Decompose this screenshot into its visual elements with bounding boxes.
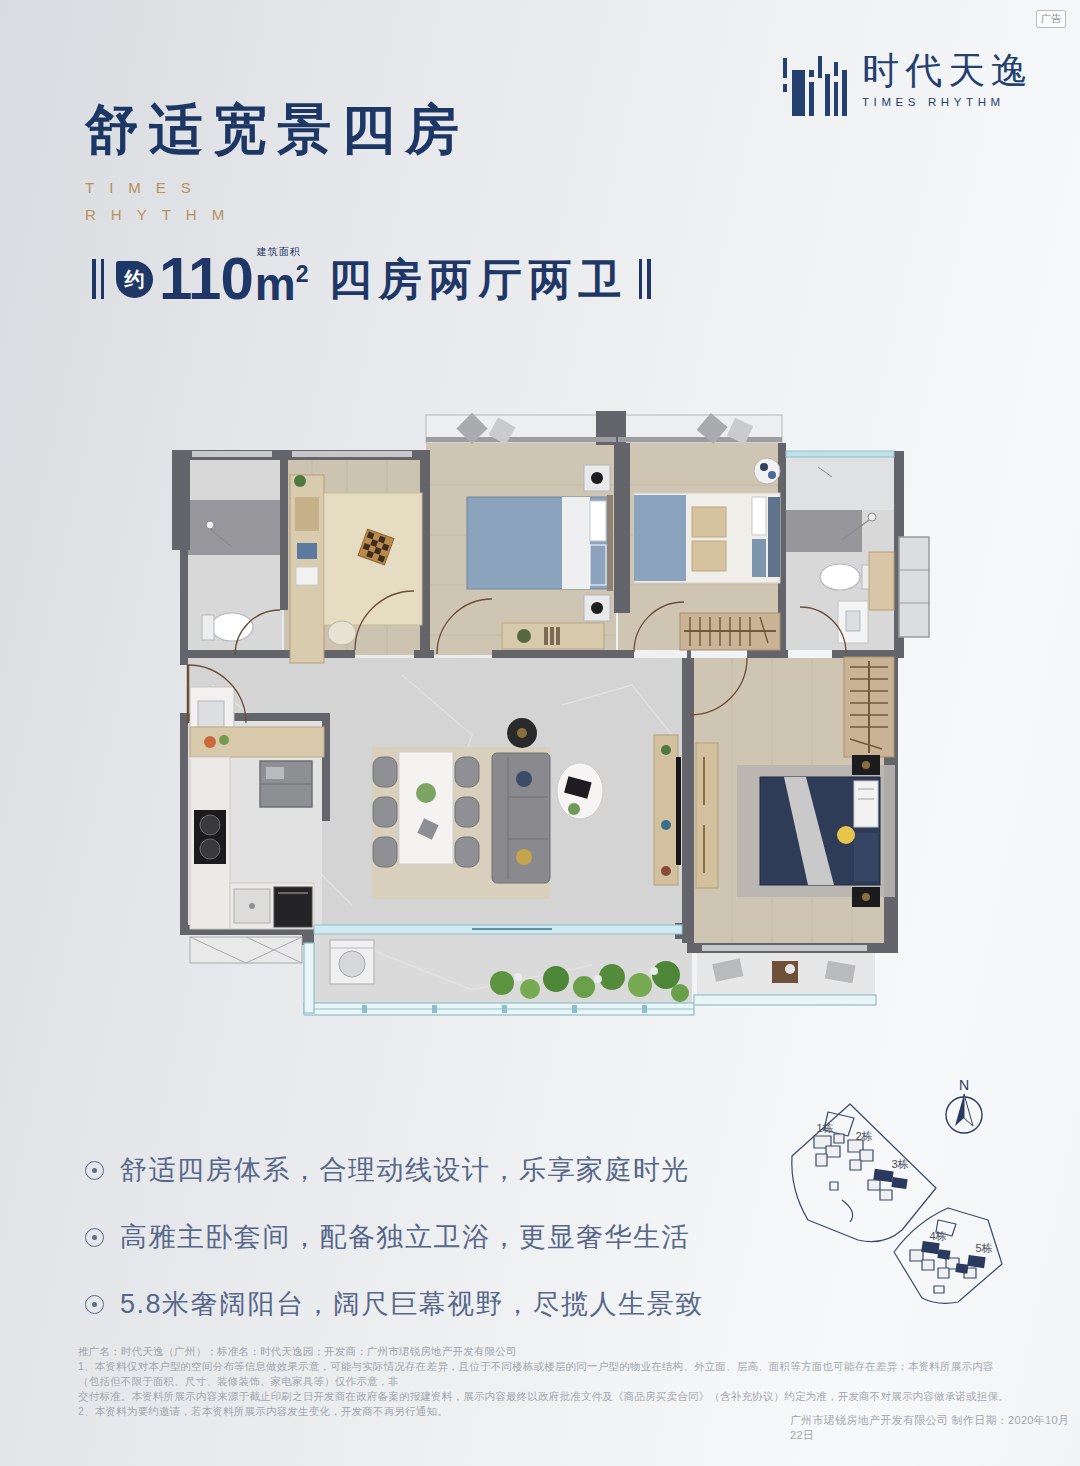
feature-item: 高雅主卧套间，配备独立卫浴，更显奢华生活 bbox=[85, 1219, 704, 1255]
ac-ledge bbox=[899, 537, 929, 637]
feature-item: 舒适四房体系，合理动线设计，乐享家庭时光 bbox=[85, 1152, 704, 1188]
site-plan: N bbox=[788, 1072, 1080, 1328]
poster-page: 广告 时代天逸 TIMES RHYTHM 舒适宽景四房 TIME bbox=[0, 0, 1080, 1466]
double-bar-left-icon bbox=[92, 259, 104, 299]
double-bar-right-icon bbox=[639, 259, 651, 299]
bullet-dot-icon bbox=[85, 1161, 104, 1180]
disclaimer: 推广名：时代天逸（广州）；标准名：时代天逸园；开发商：广州市珺锐房地产开发有限公… bbox=[78, 1344, 1013, 1419]
ad-label: 广告 bbox=[1036, 10, 1066, 28]
building-label-5: 5栋 bbox=[975, 1242, 992, 1254]
svg-text:N: N bbox=[959, 1077, 969, 1093]
area-unit-wrap: 建筑面积 m2 bbox=[255, 251, 309, 307]
plot-a bbox=[792, 1104, 936, 1242]
floor-plan bbox=[172, 405, 934, 1051]
area-headline: 约 110 建筑面积 m2 四房两厅两卫 bbox=[82, 248, 661, 310]
logo-bars-icon bbox=[783, 52, 847, 126]
building-label-1: 1栋 bbox=[816, 1122, 833, 1134]
logo-name-en: TIMES RHYTHM bbox=[862, 96, 1034, 108]
producer-credit: 广州市珺锐房地产开发有限公司 制作日期：2020年10月22日 bbox=[790, 1413, 1080, 1443]
page-title-en: TIMES RHYTHM bbox=[85, 174, 469, 228]
feature-item: 5.8米奢阔阳台，阔尺巨幕视野，尽揽人生景致 bbox=[85, 1286, 704, 1322]
bullet-dot-icon bbox=[85, 1295, 104, 1314]
title-en-line2: RHYTHM bbox=[85, 201, 469, 228]
feature-text: 5.8米奢阔阳台，阔尺巨幕视野，尽揽人生景致 bbox=[120, 1286, 704, 1322]
rooms-layout-text: 四房两厅两卫 bbox=[329, 258, 629, 301]
area-unit: m bbox=[255, 258, 296, 310]
site-plan-drawing: N bbox=[788, 1072, 1080, 1324]
area-sup: 2 bbox=[296, 261, 309, 287]
brand-logo: 时代天逸 TIMES RHYTHM bbox=[783, 52, 1034, 126]
feature-text: 舒适四房体系，合理动线设计，乐享家庭时光 bbox=[120, 1152, 690, 1188]
page-title-block: 舒适宽景四房 TIMES RHYTHM bbox=[85, 102, 469, 228]
title-en-line1: TIMES bbox=[85, 174, 469, 201]
building-label-4: 4栋 bbox=[929, 1230, 946, 1242]
floor-plan-drawing bbox=[172, 405, 934, 1047]
page-title: 舒适宽景四房 bbox=[85, 102, 469, 156]
disclaimer-line: 1、本资料仅对本户型的空间分布等信息做效果示意，可能与实际情况存在差异，且位于不… bbox=[78, 1359, 1013, 1389]
feature-text: 高雅主卧套间，配备独立卫浴，更显奢华生活 bbox=[120, 1219, 690, 1255]
area-note: 建筑面积 bbox=[257, 245, 301, 259]
logo-text: 时代天逸 TIMES RHYTHM bbox=[862, 52, 1034, 108]
plot-b bbox=[894, 1208, 1002, 1303]
area-value: 110 bbox=[159, 249, 253, 309]
building-label-3: 3栋 bbox=[891, 1158, 908, 1170]
feature-list: 舒适四房体系，合理动线设计，乐享家庭时光 高雅主卧套间，配备独立卫浴，更显奢华生… bbox=[85, 1152, 704, 1353]
north-compass-icon: N bbox=[946, 1077, 982, 1133]
logo-name-cn: 时代天逸 bbox=[862, 52, 1034, 89]
building-label-2: 2栋 bbox=[855, 1130, 872, 1142]
disclaimer-line: 推广名：时代天逸（广州）；标准名：时代天逸园；开发商：广州市珺锐房地产开发有限公… bbox=[78, 1344, 1013, 1359]
bullet-dot-icon bbox=[85, 1228, 104, 1247]
approx-badge: 约 bbox=[116, 261, 153, 298]
disclaimer-line: 交付标准。本资料所展示内容来源于截止印刷之日开发商在政府备案的报建资料，展示内容… bbox=[78, 1389, 1013, 1404]
